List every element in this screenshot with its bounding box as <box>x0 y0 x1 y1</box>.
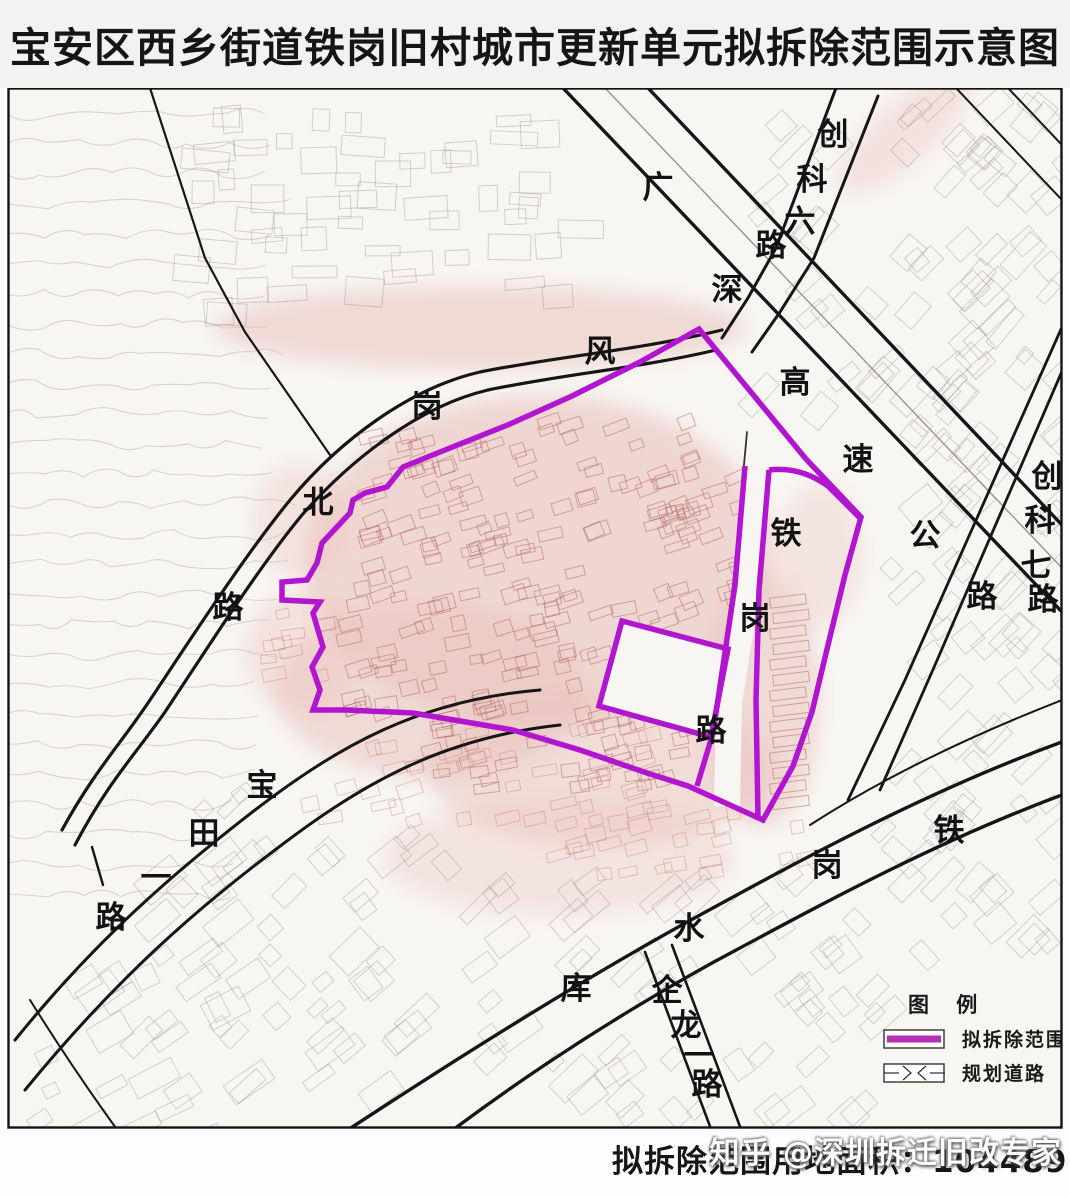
road-label-fenggang-north-road: 风 <box>585 334 616 370</box>
road-label-tiegang-reservoir: 库 <box>561 971 592 1007</box>
map-page: 风岗北路宝田一路广深高速公路创科六路创科七路铁岗路铁岗水库企龙一路 图 例 拟拆… <box>0 0 1070 1198</box>
building-outline <box>56 1130 101 1159</box>
road-label-chuangke-6-road: 创 <box>817 117 849 153</box>
road-label-tiegang-reservoir: 水 <box>674 911 706 947</box>
road-label-chuangke-7-road: 七 <box>1021 548 1052 584</box>
road-label-tiegang-reservoir: 铁 <box>934 813 965 849</box>
road-label-chuangke-7-road: 创 <box>1031 459 1063 495</box>
title-band: 宝安区西乡街道铁岗旧村城市更新单元拟拆除范围示意图 <box>0 0 1070 88</box>
road-label-baotian-first-road: 一 <box>141 860 172 896</box>
road-label-guangshen-expressway: 广 <box>643 170 674 206</box>
zhihu-watermark: 知乎 @深圳拆迁旧改专家 <box>710 1128 1062 1172</box>
legend-label-planned-road: 规划道路 <box>962 1062 1046 1085</box>
map-canvas: 风岗北路宝田一路广深高速公路创科六路创科七路铁岗路铁岗水库企龙一路 图 例 拟拆… <box>0 0 1070 1198</box>
road-label-tiegang-road: 岗 <box>740 601 771 637</box>
road-label-chuangke-7-road: 路 <box>1028 582 1060 618</box>
road-label-fenggang-north-road: 岗 <box>412 389 443 425</box>
building-outline <box>205 1146 249 1184</box>
road-label-baotian-first-road: 宝 <box>247 768 278 804</box>
legend-heading: 图 例 <box>908 993 987 1017</box>
demolition-map: 风岗北路宝田一路广深高速公路创科六路创科七路铁岗路铁岗水库企龙一路 图 例 拟拆… <box>0 0 1070 1198</box>
road-label-chuangke-6-road: 科 <box>797 162 828 198</box>
building-outline <box>127 1140 150 1158</box>
road-label-chuangke-6-road: 路 <box>756 228 788 264</box>
building-outline <box>41 1142 87 1183</box>
road-label-tiegang-road: 路 <box>696 713 728 749</box>
road-label-guangshen-expressway: 公 <box>910 518 941 554</box>
road-label-chuangke-7-road: 科 <box>1025 503 1056 539</box>
road-label-baotian-first-road: 路 <box>96 900 128 936</box>
road-label-qilong-first-road: 企 <box>652 973 684 1009</box>
road-label-fenggang-north-road: 北 <box>303 485 334 521</box>
road-label-fenggang-north-road: 路 <box>213 590 245 626</box>
road-label-chuangke-6-road: 六 <box>785 204 816 240</box>
road-label-baotian-first-road: 田 <box>189 816 220 852</box>
road-label-tiegang-road: 铁 <box>771 516 802 552</box>
page-title: 宝安区西乡街道铁岗旧村城市更新单元拟拆除范围示意图 <box>10 14 1060 74</box>
road-label-guangshen-expressway: 路 <box>967 579 999 615</box>
road-label-guangshen-expressway: 深 <box>712 272 743 308</box>
legend-label-demolition: 拟拆除范围 <box>962 1028 1067 1051</box>
road-label-qilong-first-road: 路 <box>692 1067 724 1103</box>
road-label-tiegang-reservoir: 岗 <box>812 848 843 884</box>
road-label-guangshen-expressway: 速 <box>843 442 874 478</box>
road-label-guangshen-expressway: 高 <box>780 365 811 401</box>
